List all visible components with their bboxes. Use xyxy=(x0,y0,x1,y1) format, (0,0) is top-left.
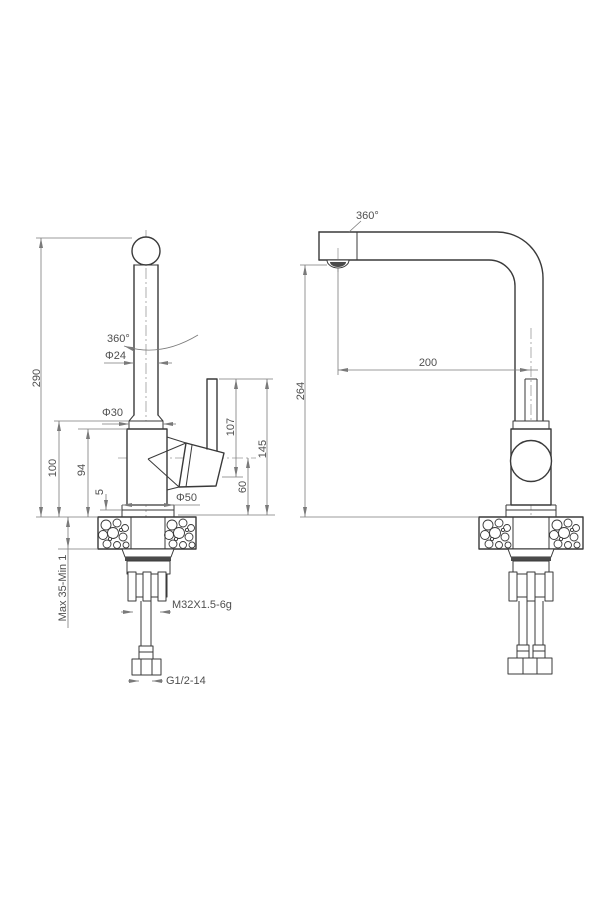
dim-107-label: 107 xyxy=(225,418,237,436)
nut-rib xyxy=(527,572,535,601)
side-countertop xyxy=(479,517,583,549)
side-spout xyxy=(319,232,543,421)
nut-rib xyxy=(545,572,553,601)
front-swivel-label: 360° xyxy=(107,333,130,345)
technical-drawing: 290 100 94 5 Max 35-Min 1 Φ24 Φ30 Φ50 36… xyxy=(0,0,600,900)
side-hose-nuts xyxy=(508,658,552,674)
column-collar xyxy=(129,421,163,429)
side-mounting-washer xyxy=(508,549,554,557)
handle-lever xyxy=(207,379,217,451)
dim-290-label: 290 xyxy=(31,369,43,387)
swivel-arc xyxy=(124,335,198,350)
dim-94-label: 94 xyxy=(76,464,88,476)
nut-rib xyxy=(158,572,166,601)
spout-tip-circle xyxy=(132,237,160,265)
hose-hex-nut xyxy=(132,659,161,675)
front-body xyxy=(122,379,224,517)
side-hoses xyxy=(508,601,552,674)
side-joint-circle xyxy=(511,441,552,482)
dia50-label: Φ50 xyxy=(176,492,197,504)
dim-5-label: 5 xyxy=(94,489,106,495)
side-mounting xyxy=(508,549,554,674)
side-view: 360° 200 264 xyxy=(295,210,583,674)
side-collar xyxy=(513,421,549,429)
mounting-washer xyxy=(122,549,174,557)
base-flange xyxy=(122,505,174,517)
dim-200-label: 200 xyxy=(419,357,437,369)
dim-60-label: 60 xyxy=(237,481,249,493)
side-swivel-label: 360° xyxy=(356,210,379,222)
dia24-label: Φ24 xyxy=(105,350,126,362)
inlet-thread-label: G1/2-14 xyxy=(166,675,206,687)
nut-rib xyxy=(128,572,136,601)
drawing-page: 290 100 94 5 Max 35-Min 1 Φ24 Φ30 Φ50 36… xyxy=(0,0,600,900)
side-mounting-gasket xyxy=(511,557,551,561)
deck-range-label: Max 35-Min 1 xyxy=(57,555,69,622)
nut-rib xyxy=(143,572,151,601)
mounting-gasket xyxy=(125,557,171,561)
dim-100-label: 100 xyxy=(47,459,59,477)
front-hose xyxy=(132,601,161,675)
swivel-leader xyxy=(349,221,361,232)
dia30-label: Φ30 xyxy=(102,407,123,419)
front-view: 290 100 94 5 Max 35-Min 1 Φ24 Φ30 Φ50 36… xyxy=(31,230,275,687)
mounting-thread-label: M32X1.5-6g xyxy=(172,599,232,611)
faucet-body xyxy=(127,429,167,505)
front-countertop xyxy=(98,517,196,549)
dim-264-label: 264 xyxy=(295,382,307,400)
nut-rib xyxy=(509,572,517,601)
side-dimensions: 360° 200 264 xyxy=(295,210,538,517)
dim-145-label: 145 xyxy=(257,440,269,458)
